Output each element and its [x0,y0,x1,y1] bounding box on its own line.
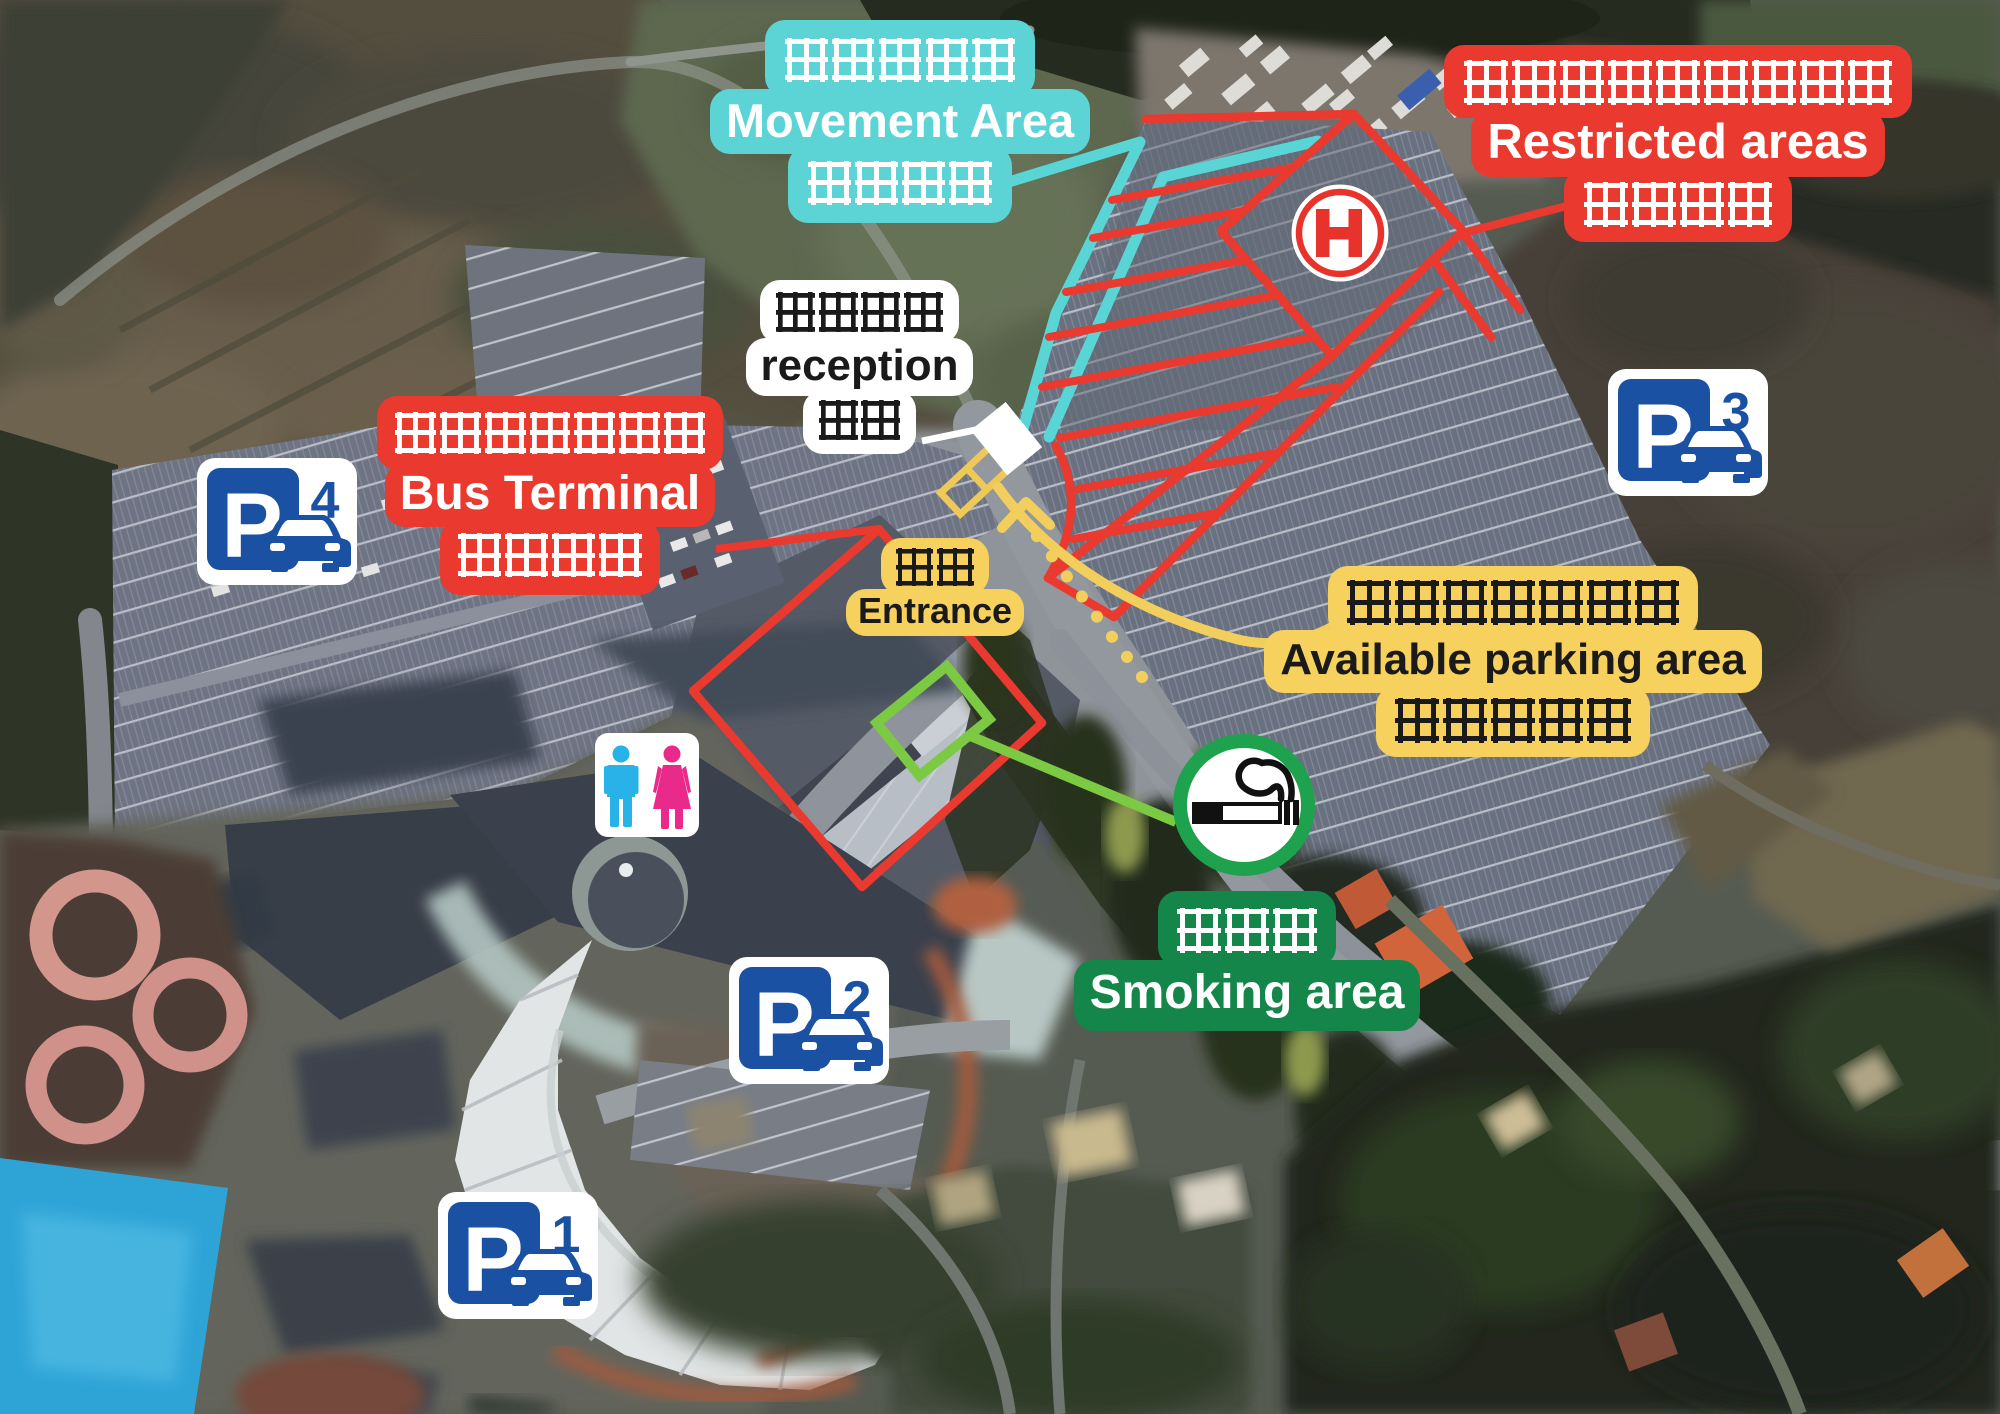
svg-text:2: 2 [843,971,872,1029]
svg-text:3: 3 [1722,383,1751,441]
svg-text:4: 4 [311,472,340,530]
svg-text:1: 1 [552,1206,581,1264]
